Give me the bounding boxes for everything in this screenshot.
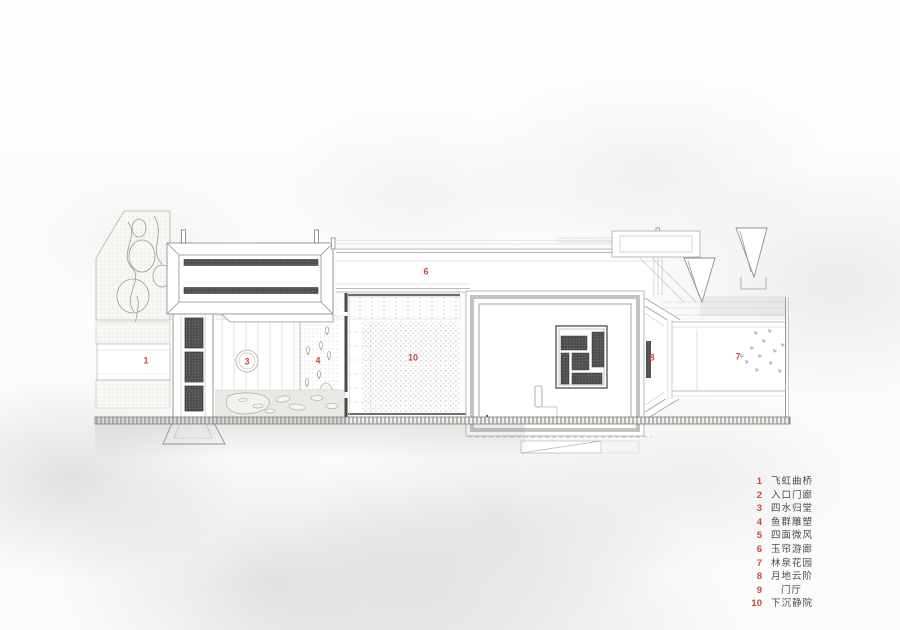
- legend-row: 6 玉帘游廊: [742, 541, 813, 555]
- legend-number: 5: [742, 530, 762, 541]
- legend-row: 1 飞虹曲桥: [742, 473, 813, 487]
- legend-row: 10 下沉静院: [742, 595, 813, 609]
- legend-label: 下沉静院: [771, 595, 813, 609]
- legend-number: 7: [742, 558, 762, 569]
- plan-legend: 1 飞虹曲桥 2 入口门廊 3 四水归堂 4 鱼群雕塑 5 四面微风 6 玉帘游…: [742, 473, 813, 609]
- plan-area-label-1: 1: [143, 357, 148, 366]
- legend-number: 9: [742, 585, 762, 596]
- legend-number: 1: [742, 476, 762, 487]
- plan-area-label-3: 3: [244, 358, 249, 367]
- legend-label: 月地云阶: [771, 568, 813, 582]
- legend-row: 9 门厅: [742, 582, 813, 596]
- plan-area-label-8: 8: [649, 354, 654, 363]
- legend-label: 四面微风: [771, 527, 813, 541]
- legend-row: 5 四面微风: [742, 527, 813, 541]
- legend-number: 6: [742, 544, 762, 555]
- legend-row: 4 鱼群雕塑: [742, 514, 813, 528]
- legend-row: 8 月地云阶: [742, 568, 813, 582]
- legend-number: 2: [742, 490, 762, 501]
- legend-row: 3 四水归堂: [742, 500, 813, 514]
- legend-row: 2 入口门廊: [742, 487, 813, 501]
- legend-number: 8: [742, 571, 762, 582]
- architectural-plan-page: 1 3 4 6 7 8 10 1 飞虹曲桥 2 入口门廊 3 四水归堂 4 鱼群…: [0, 0, 900, 630]
- legend-label: 林泉花园: [771, 555, 813, 569]
- legend-label: 玉帘游廊: [771, 541, 813, 555]
- plan-area-label-4: 4: [315, 357, 320, 366]
- legend-label: 入口门廊: [771, 487, 813, 501]
- legend-number: 10: [742, 598, 762, 609]
- legend-number: 3: [742, 503, 762, 514]
- legend-row: 7 林泉花园: [742, 555, 813, 569]
- plan-area-label-10: 10: [408, 354, 418, 363]
- legend-number: 4: [742, 517, 762, 528]
- legend-label: 门厅: [771, 582, 802, 596]
- legend-label: 飞虹曲桥: [771, 473, 813, 487]
- plan-area-label-7: 7: [735, 353, 740, 362]
- plan-area-label-6: 6: [423, 268, 428, 277]
- legend-label: 四水归堂: [771, 500, 813, 514]
- legend-label: 鱼群雕塑: [771, 514, 813, 528]
